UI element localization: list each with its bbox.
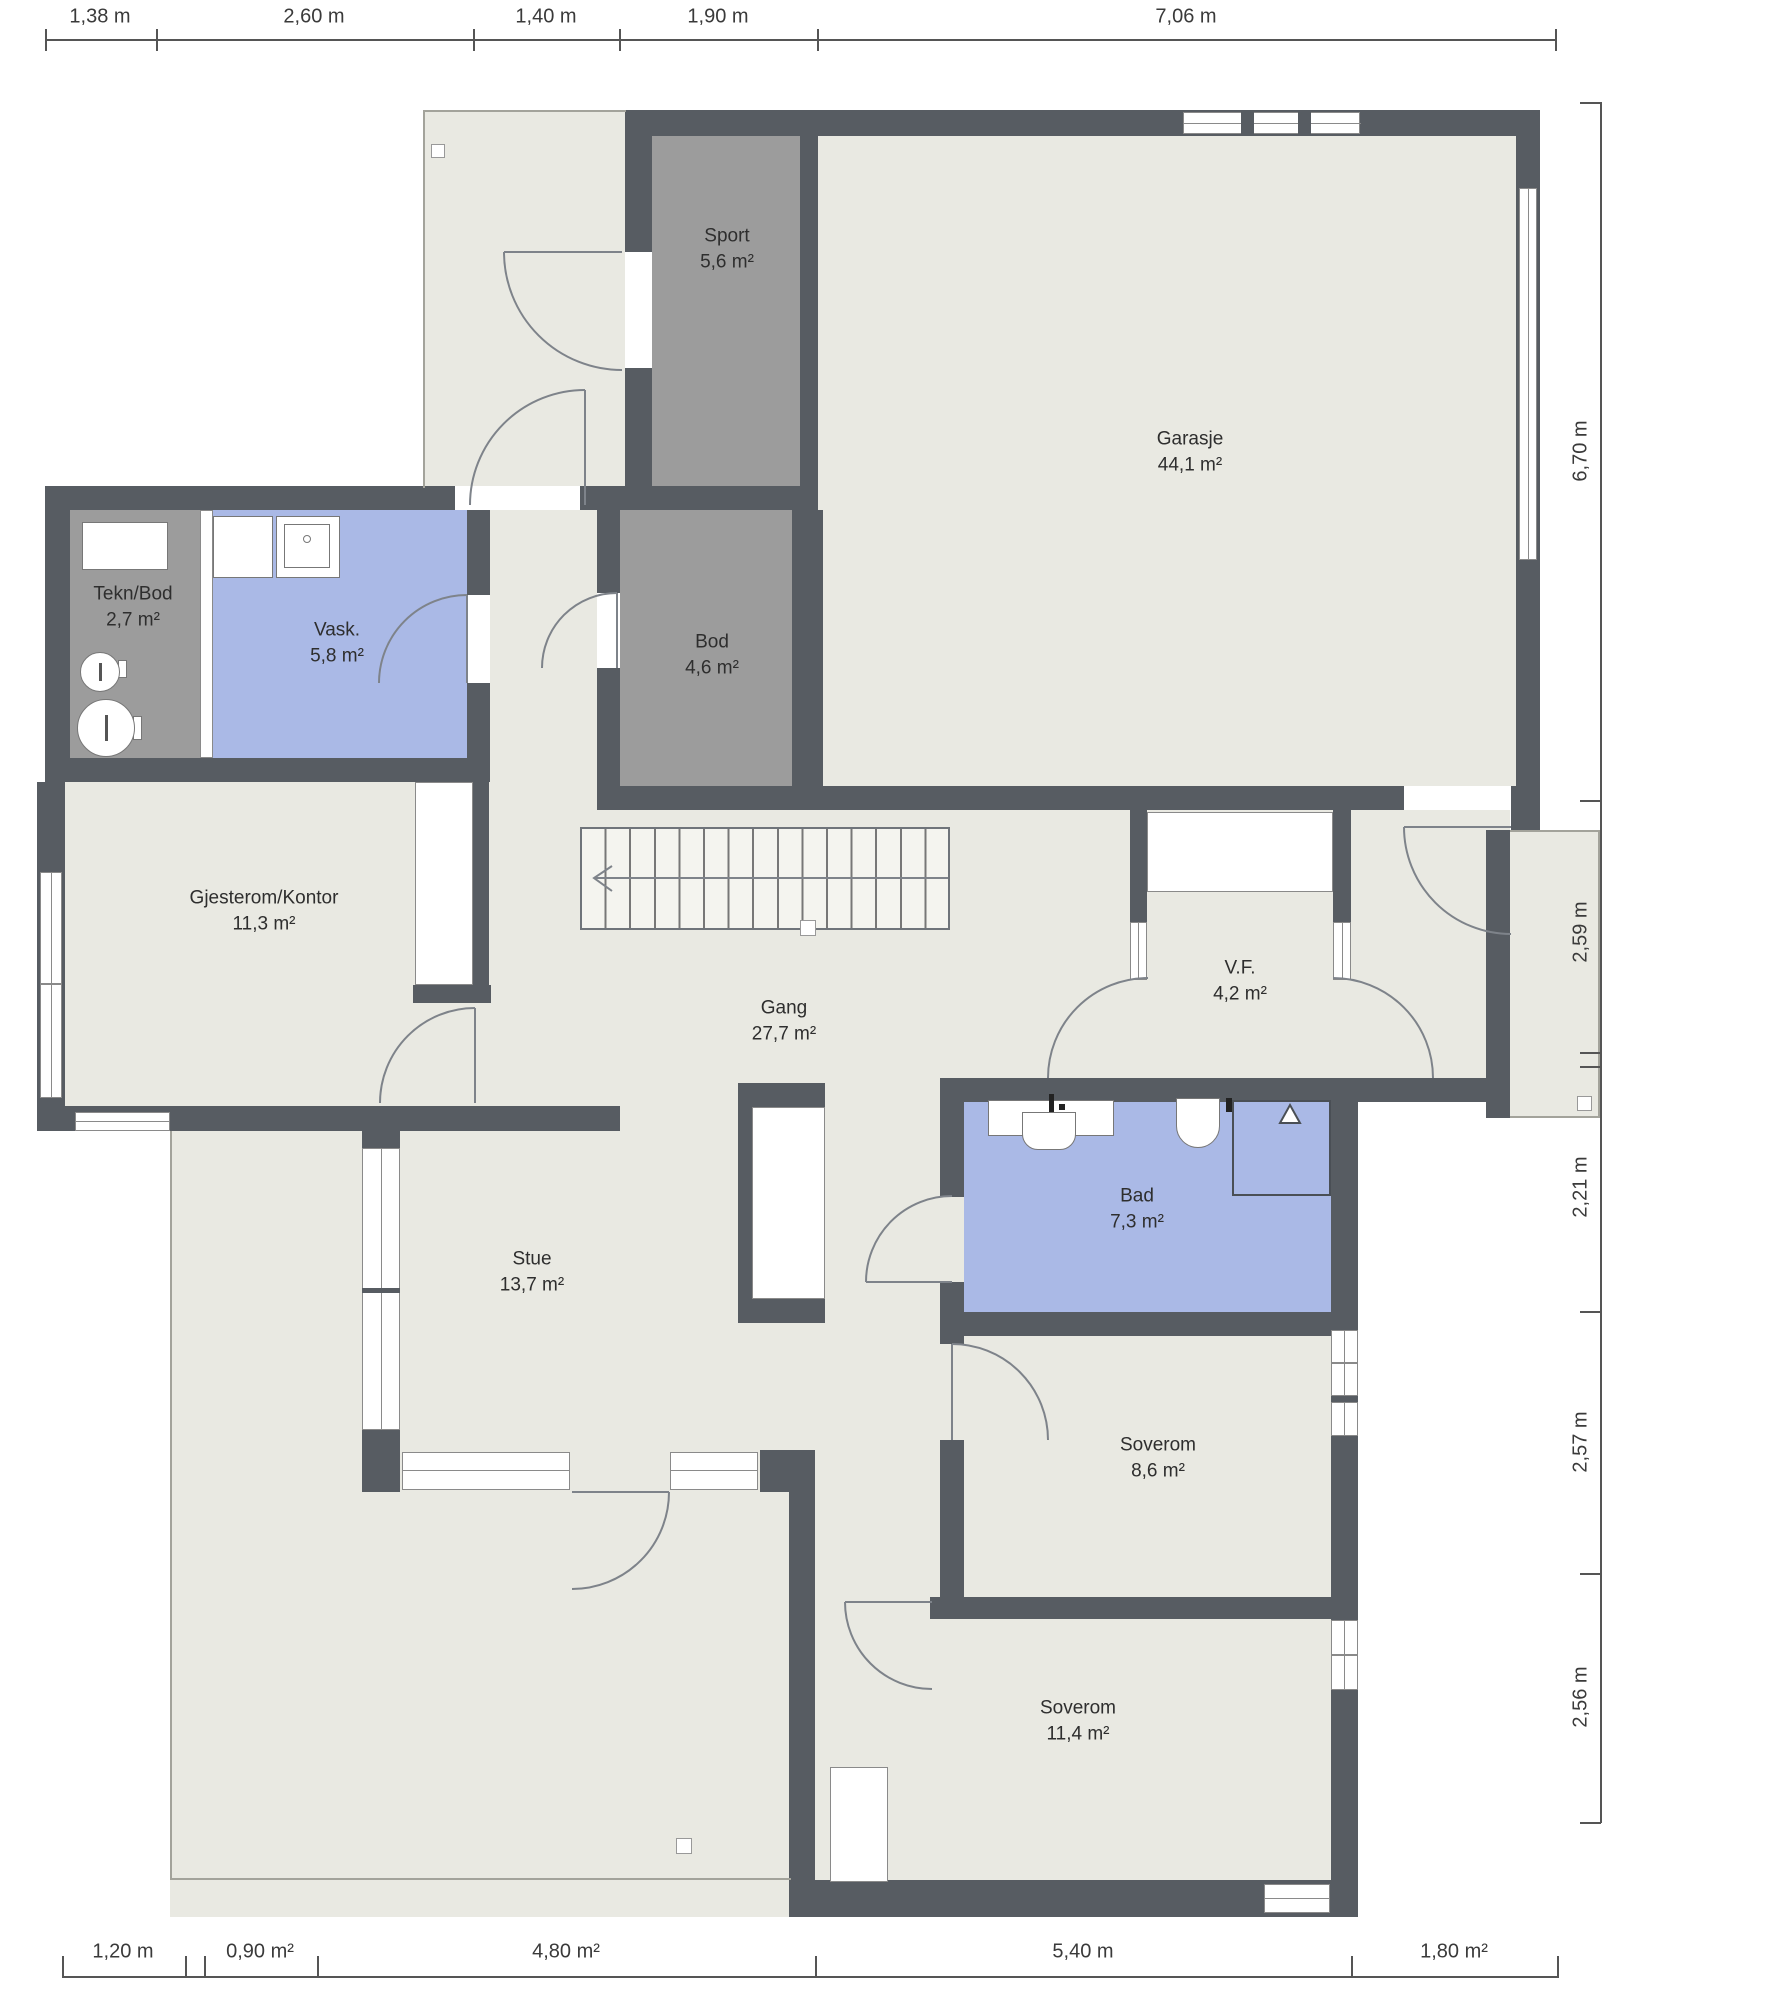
room-label-tekn-bod: Tekn/Bod 2,7 m² [93, 581, 172, 632]
dim-tick [1580, 800, 1601, 802]
dim-bottom-3: 5,40 m [1052, 1941, 1113, 1964]
dim-tick [815, 1956, 817, 1978]
dim-tick [62, 1956, 64, 1978]
room-label-vask: Vask. 5,8 m² [310, 617, 364, 668]
dim-top-2: 1,40 m [515, 6, 576, 29]
door-arc [504, 252, 622, 370]
room-area: 4,6 m² [685, 655, 739, 681]
room-name: Soverom [1040, 1695, 1116, 1721]
dim-tick [45, 29, 47, 51]
dim-top-0: 1,38 m [69, 6, 130, 29]
dim-tick [1580, 1822, 1601, 1824]
room-label-vf: V.F. 4,2 m² [1213, 955, 1267, 1006]
room-label-bod: Bod 4,6 m² [685, 629, 739, 680]
room-area: 5,6 m² [700, 249, 754, 275]
room-name: Vask. [310, 617, 364, 643]
room-area: 11,3 m² [190, 911, 339, 937]
door-arc [845, 1602, 932, 1689]
room-label-stue: Stue 13,7 m² [500, 1246, 564, 1297]
dim-tick [1580, 1052, 1601, 1054]
dim-tick [817, 29, 819, 51]
room-name: Stue [500, 1246, 564, 1272]
room-area: 7,3 m² [1110, 1209, 1164, 1235]
dim-bottom-1: 0,90 m² [226, 1941, 294, 1964]
room-name: Bad [1110, 1183, 1164, 1209]
room-name: Garasje [1157, 426, 1224, 452]
dim-tick [1557, 1956, 1559, 1978]
dim-tick [1555, 29, 1557, 51]
dim-right-4: 2,56 m [1570, 1666, 1593, 1727]
dim-right-1: 2,59 m [1570, 901, 1593, 962]
dim-top-3: 1,90 m [687, 6, 748, 29]
room-area: 13,7 m² [500, 1272, 564, 1298]
room-name: Tekn/Bod [93, 581, 172, 607]
dim-tick [317, 1956, 319, 1978]
dim-line-bottom [62, 1976, 1558, 1978]
dim-tick [1580, 1311, 1601, 1313]
door-arc [1404, 827, 1511, 934]
room-area: 8,6 m² [1120, 1458, 1196, 1484]
room-label-gjesterom: Gjesterom/Kontor 11,3 m² [190, 885, 339, 936]
room-area: 44,1 m² [1157, 452, 1224, 478]
dim-tick [1351, 1956, 1353, 1978]
room-label-bad: Bad 7,3 m² [1110, 1183, 1164, 1234]
room-label-soverom-2: Soverom 11,4 m² [1040, 1695, 1116, 1746]
door-arc [1333, 978, 1433, 1078]
dim-top-1: 2,60 m [283, 6, 344, 29]
dim-tick [1580, 1573, 1601, 1575]
room-label-gang: Gang 27,7 m² [752, 995, 816, 1046]
room-label-soverom-1: Soverom 8,6 m² [1120, 1432, 1196, 1483]
floorplan-canvas: Sport 5,6 m² Garasje 44,1 m² Tekn/Bod 2,… [0, 0, 1778, 2000]
dim-tick [185, 1956, 187, 1978]
room-area: 2,7 m² [93, 607, 172, 633]
door-arc [470, 390, 585, 505]
dim-right-0: 6,70 m [1570, 420, 1593, 481]
door-arc [380, 1008, 475, 1103]
dim-bottom-0: 1,20 m [92, 1941, 153, 1964]
dim-tick [619, 29, 621, 51]
dim-line-right [1600, 102, 1602, 1823]
dim-bottom-2: 4,80 m² [532, 1941, 600, 1964]
room-area: 11,4 m² [1040, 1721, 1116, 1747]
dim-top-4: 7,06 m [1155, 6, 1216, 29]
room-name: Sport [700, 223, 754, 249]
dim-bottom-4: 1,80 m² [1420, 1941, 1488, 1964]
door-arc [1048, 978, 1148, 1078]
dim-line-top [45, 39, 1556, 41]
door-arc [542, 593, 617, 668]
doors-and-symbols-layer [0, 0, 1778, 2000]
door-arc [952, 1344, 1048, 1440]
dim-tick [473, 29, 475, 51]
door-arc [379, 595, 467, 683]
shower-drain-icon [1280, 1105, 1300, 1123]
dim-tick [1580, 102, 1601, 104]
room-name: V.F. [1213, 955, 1267, 981]
dim-tick [1580, 1066, 1601, 1068]
room-label-sport: Sport 5,6 m² [700, 223, 754, 274]
room-area: 5,8 m² [310, 643, 364, 669]
room-name: Gang [752, 995, 816, 1021]
dim-tick [204, 1956, 206, 1978]
dim-tick [156, 29, 158, 51]
room-label-garasje: Garasje 44,1 m² [1157, 426, 1224, 477]
dim-right-3: 2,57 m [1570, 1411, 1593, 1472]
room-area: 27,7 m² [752, 1021, 816, 1047]
room-name: Gjesterom/Kontor [190, 885, 339, 911]
door-arc [866, 1196, 952, 1282]
room-area: 4,2 m² [1213, 981, 1267, 1007]
dim-right-2: 2,21 m [1570, 1156, 1593, 1217]
door-arc [572, 1492, 669, 1589]
room-name: Bod [685, 629, 739, 655]
room-name: Soverom [1120, 1432, 1196, 1458]
